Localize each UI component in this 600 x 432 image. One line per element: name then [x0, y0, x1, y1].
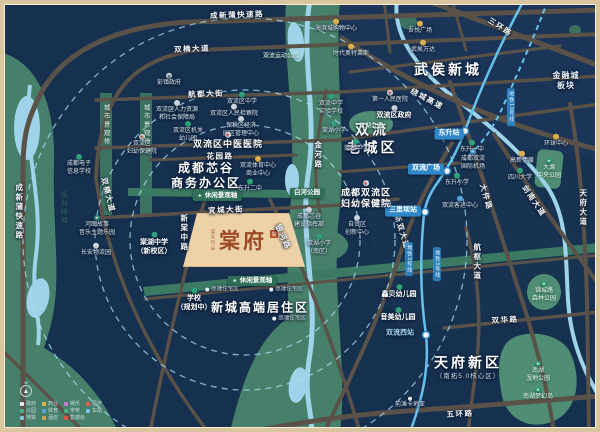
map-label-poi: 前滩卡地亚: [395, 397, 425, 410]
map-label-road: 三环路: [486, 16, 514, 39]
map-label-green: 双流运动公园: [263, 53, 299, 61]
legend-marker-icon: [64, 416, 68, 420]
labels-layer: 武侯新城双流 老城区成都芯谷 商务办公区新城高端居住区天府新区（南拓5.0核心区…: [0, 0, 600, 432]
map-label-dist: 武侯新城: [414, 61, 482, 79]
map-label-green: ♣南湖 湿地公园: [526, 361, 550, 383]
school-icon: [76, 154, 82, 160]
map-label-dist2: 新城高端居住区: [211, 301, 309, 316]
school-icon: [239, 92, 245, 98]
mall-icon: [417, 21, 423, 27]
map-label-axis: 白河公园: [290, 188, 324, 198]
map-label-poi: 双流中学 实验学校: [319, 94, 343, 116]
legend-marker-icon: [42, 409, 46, 413]
map-label-poi: 双流客运中心: [442, 196, 478, 211]
gov-icon: [238, 116, 244, 122]
map-label-stn: 东升站: [435, 129, 464, 140]
map-label-road: 五环路: [446, 409, 473, 420]
map-label-poi: 高新伊藤: [510, 151, 534, 166]
map-label-road: 花园路: [207, 151, 234, 160]
map-label-poi: 长安物流园: [81, 243, 111, 258]
legend-marker-icon: [20, 416, 24, 420]
park-icon: ♣: [541, 281, 547, 287]
legend-marker-icon: [20, 402, 24, 406]
map-label-dist3: 金融城 板块: [553, 71, 580, 91]
hospital-icon: ✚: [139, 134, 145, 140]
legend-marker-icon: [64, 409, 68, 413]
map-label-res: 高端住宅区: [272, 316, 306, 323]
legend-marker-icon: [42, 402, 46, 406]
gov-icon: ▲: [166, 73, 172, 79]
map-label-poi: ▲彭镇政府: [157, 73, 181, 88]
map-label-poi: 成都芯谷 建设指挥部: [294, 207, 324, 229]
park-icon: ♣: [535, 387, 541, 393]
school-icon: [185, 121, 191, 127]
map-label-res: 高端住宅区: [269, 287, 303, 294]
tree-icon: ♣: [232, 278, 238, 284]
map-label-poi: 双流区人力资源 和社会保障局: [156, 100, 198, 122]
legend-marker-icon: [64, 402, 68, 406]
school-icon: [454, 173, 460, 179]
legend-row: 地铁酒店售楼处: [20, 414, 102, 421]
school-icon: [396, 284, 402, 290]
map-label-road: 大件路: [478, 183, 494, 212]
school-icon: [191, 288, 197, 294]
map-label-road: 绕城高速: [409, 86, 445, 111]
legend-item: 医疗: [86, 400, 102, 407]
map-label-poi: 四川大学: [508, 168, 532, 183]
dot-icon: [205, 288, 209, 292]
dot-icon: [408, 397, 412, 401]
legend-items: 政府商业娱乐医疗公园体育学校车站地铁酒店售楼处: [20, 400, 102, 421]
legend-item: 学校: [64, 407, 80, 414]
school-icon: [469, 140, 475, 146]
map-label-green-v-dark: 规划绿地: [58, 191, 66, 225]
map-label-poi: 武侯万达: [411, 40, 435, 55]
school-icon: [316, 234, 322, 240]
map-label-stnt: 双流西站: [386, 330, 414, 339]
school-icon: [353, 139, 359, 145]
map-label-poi: 双流体育中心 商业中心: [240, 156, 276, 178]
map-label-dist2: 成都芯谷 商务办公区: [171, 161, 241, 191]
hospital-icon: ✚: [225, 132, 231, 138]
legend-item: 酒店: [42, 414, 58, 421]
park-icon: ♣: [546, 158, 552, 164]
map-label-road: 航都大街: [188, 89, 224, 100]
legend-item: 公园: [20, 407, 36, 414]
school-icon: [151, 232, 157, 238]
legend-item: 商业: [42, 400, 58, 407]
legend-marker-icon: [86, 409, 90, 413]
map-label-dist: 天府新区: [434, 354, 502, 372]
map-label-poi: 环球中心: [544, 134, 568, 149]
map-canvas: 棠系作品 棠府 棠 武侯新城双流 老城区成都芯谷 商务办公区新城高端居住区天府新…: [0, 0, 600, 432]
map-label-poi: 东升二中: [238, 179, 262, 194]
mall-icon: [519, 151, 525, 157]
map-label-green: ♣锦城路 森林公园: [532, 281, 556, 303]
map-label-mtag: 地铁10号线: [507, 88, 515, 126]
map-label-stn: 双流广场: [408, 164, 444, 175]
bus-icon: [457, 196, 463, 202]
map-label-road: 双楠大道: [174, 44, 210, 55]
map-label-poi: 吾悦广场: [408, 21, 432, 36]
school-icon: [395, 307, 401, 313]
map-label-poib: ✚成都双流区 妇幼保健院: [341, 180, 391, 210]
gov-icon: [391, 105, 397, 111]
legend-marker-icon: [20, 409, 24, 413]
gov-icon: [354, 215, 360, 221]
legend-item: 车站: [86, 407, 102, 414]
mall-icon: [420, 40, 426, 46]
mall-icon: [348, 44, 354, 50]
map-label-green-v: 城市景观带: [101, 104, 109, 147]
mall-icon: [553, 134, 559, 140]
compass-icon: N: [20, 381, 32, 397]
map-label-poi: 自贸区 创新中心: [345, 215, 369, 237]
map-label-mtag: 地铁3号线: [405, 242, 413, 276]
map-label-road: 银河路: [273, 223, 293, 251]
hospital-icon: ✚: [363, 180, 369, 186]
legend-row: 政府商业娱乐医疗: [20, 400, 102, 407]
map-label-road: 双华路: [491, 315, 518, 326]
hospital-icon: ✚: [387, 90, 393, 96]
legend-item: 娱乐: [64, 400, 80, 407]
map-label-poi: ✚双流区 妇幼保健院: [127, 134, 157, 156]
map-label-green: ♣大源 中央公园: [537, 158, 561, 180]
gov-icon: [306, 207, 312, 213]
legend-marker-icon: [86, 402, 90, 406]
map-label-road-v: 金河路: [313, 141, 322, 170]
map-label-poi2: 双流区政府: [377, 105, 412, 121]
map-label-road-v: 天府大道: [578, 189, 587, 227]
dot-icon: [272, 317, 276, 321]
map-label-poi2: 音美幼儿园: [381, 307, 416, 323]
school-icon: [331, 121, 337, 127]
legend-item: 政府: [20, 400, 36, 407]
legend-item: 体育: [42, 407, 58, 414]
map-label-poi: 东升小学: [445, 173, 469, 188]
tree-icon: ♣: [197, 193, 203, 199]
school-icon: [517, 168, 523, 174]
map-label-poib: ✚双流区中医医院: [193, 132, 263, 150]
gov-icon: [231, 104, 237, 110]
map-label-road-v: 航枢大道: [472, 243, 481, 281]
map-label-poi: 时代奥特莱斯: [333, 44, 369, 59]
map-label-res: 高端住宅区: [205, 287, 239, 294]
map-label-road: 剑南大道: [520, 183, 548, 218]
map-label-road-v: 新棠中路: [179, 214, 188, 252]
map-label-poi2: 鑫贝幼儿园: [382, 284, 417, 300]
dot-icon: [269, 288, 273, 292]
map-label-mtag: 地铁3号线: [433, 247, 441, 281]
mall-icon: [255, 156, 261, 162]
map-label-poi: 海滨城购物中心: [315, 19, 357, 34]
map-legend: N 政府商业娱乐医疗公园体育学校车站地铁酒店售楼处: [20, 381, 102, 421]
map-label-poi: ♣河图故事 音乐主题乐园: [79, 215, 115, 237]
plane-icon: ✈: [470, 149, 476, 155]
map-label-poi2: 棠湖中学 （新校区）: [137, 232, 172, 257]
legend-row: 公园体育学校车站: [20, 407, 102, 414]
map-label-poi: 成都电子 信息学校: [67, 154, 91, 176]
map-label-dist-sub: （南拓5.0核心区）: [436, 373, 501, 381]
map-label-road: 宜城大街: [208, 205, 244, 216]
gov-icon: [93, 243, 99, 249]
map-label-road: 双楠大道: [99, 176, 117, 213]
legend-marker-icon: [42, 416, 46, 420]
map-label-green: ♣南湖梦幻岛: [523, 387, 553, 402]
map-label-poi: 棠湖小学: [322, 121, 346, 136]
map-label-poi: ✚第一人民医院: [372, 90, 408, 105]
park-icon: ♣: [94, 215, 100, 221]
map-label-poi: 棠湖小学 （南区）: [307, 234, 331, 256]
map-label-poi: ✈成都双流 国际机场: [461, 149, 485, 171]
legend-item: 地铁: [20, 414, 36, 421]
map-label-axis: ♣休闲景观轴: [228, 276, 277, 286]
park-icon: ♣: [535, 361, 541, 367]
school-icon: [247, 179, 253, 185]
map-label-road-v: 成新蒲快速路: [14, 184, 23, 241]
map-label-axis: ♣休闲景观轴: [193, 191, 242, 201]
gov-icon: [174, 100, 180, 106]
map-label-poi: 棠湖中学: [344, 139, 368, 154]
legend-item: 售楼处: [64, 414, 85, 421]
mall-icon: [333, 19, 339, 25]
school-icon: [328, 94, 334, 100]
map-label-road: 成新蒲快速路: [210, 9, 264, 20]
map-label-green: 棠湖公园: [359, 123, 383, 131]
